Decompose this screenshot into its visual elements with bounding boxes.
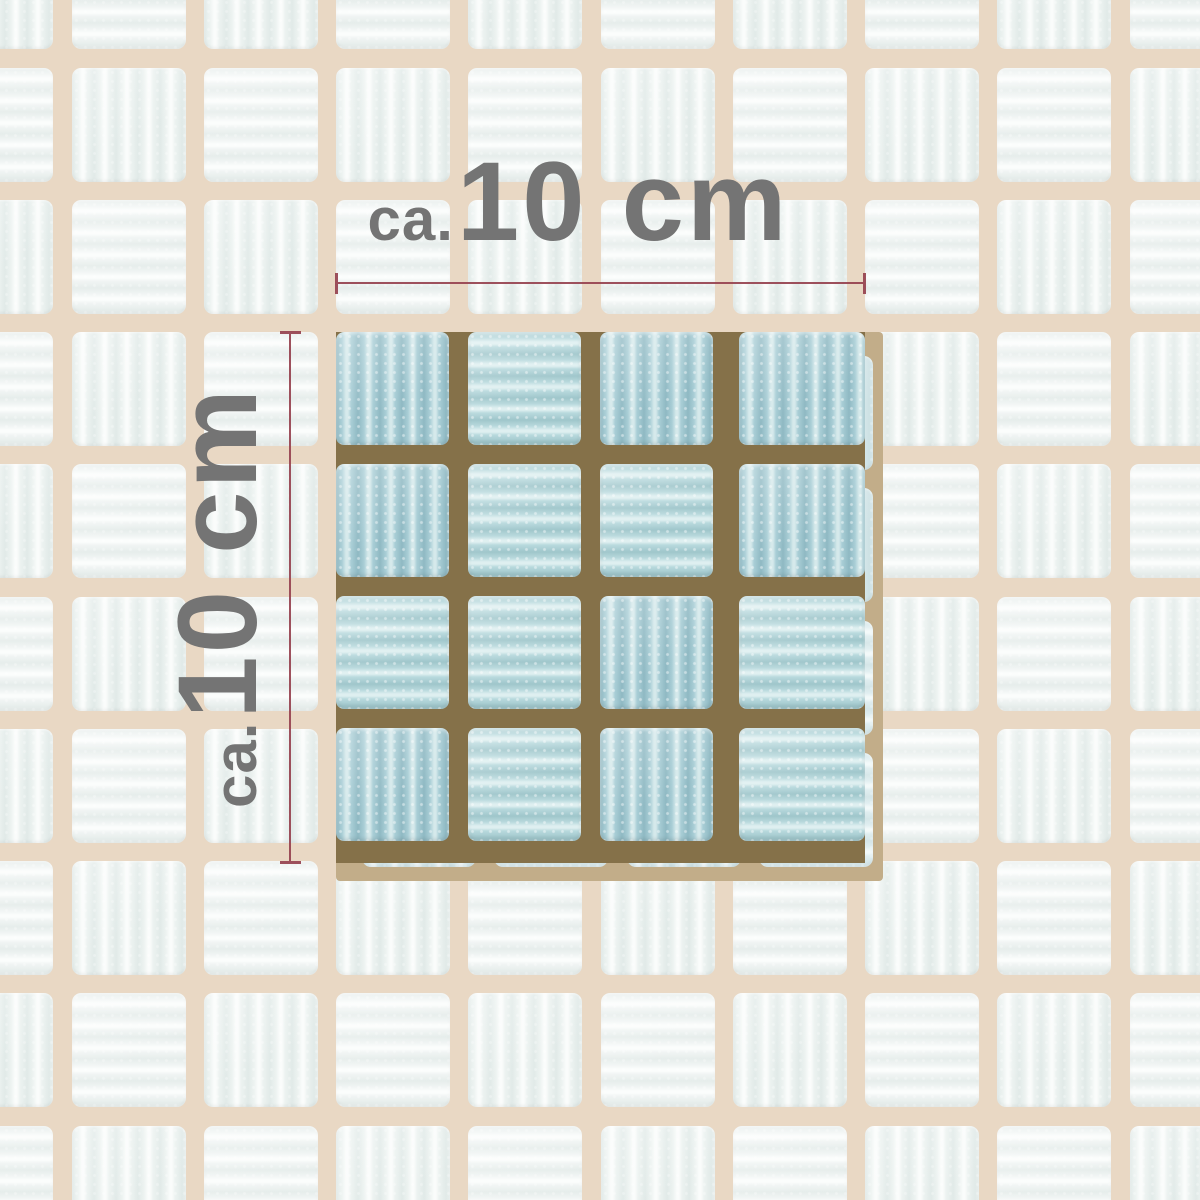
mosaic-tile [865, 0, 979, 49]
highlight-tile [468, 728, 581, 841]
height-label-value: 10 cm [162, 386, 274, 719]
mosaic-tile [0, 729, 53, 843]
measure-cap-right [863, 273, 866, 294]
mosaic-tile [997, 332, 1111, 446]
mosaic-tile [601, 0, 715, 49]
highlight-tile [739, 464, 865, 577]
mosaic-tile [336, 1126, 450, 1200]
highlight-tile [468, 464, 581, 577]
mosaic-tile [468, 993, 582, 1107]
mosaic-tile [0, 464, 53, 578]
measure-cap-left [335, 273, 338, 294]
highlight-tile [336, 596, 449, 709]
highlight-tile [739, 728, 865, 841]
height-label-prefix: ca. [206, 722, 266, 808]
highlight-tile [336, 332, 449, 445]
mosaic-tile [997, 0, 1111, 49]
mosaic-tile [0, 200, 53, 314]
mosaic-tile [0, 68, 53, 182]
mosaic-tile [733, 1126, 847, 1200]
measure-cap-top [280, 331, 301, 334]
mosaic-tile [72, 200, 186, 314]
mosaic-tile [1130, 0, 1200, 49]
mosaic-tile [0, 0, 53, 49]
mosaic-tile [72, 861, 186, 975]
mosaic-tile [733, 0, 847, 49]
mosaic-tile [1130, 729, 1200, 843]
mosaic-tile [1130, 68, 1200, 182]
mosaic-tile [468, 0, 582, 49]
highlight-tile [336, 728, 449, 841]
highlight-tile [468, 596, 581, 709]
mosaic-tile [997, 861, 1111, 975]
product-image: ca.10 cm ca.10 cm [0, 0, 1200, 1200]
mosaic-tile [601, 993, 715, 1107]
mosaic-tile [336, 993, 450, 1107]
height-measure-line [289, 332, 291, 863]
width-label-prefix: ca. [368, 190, 454, 250]
mosaic-tile [997, 200, 1111, 314]
mosaic-tile [204, 1126, 318, 1200]
mosaic-tile [1130, 332, 1200, 446]
mosaic-tile [601, 1126, 715, 1200]
mosaic-tile [997, 597, 1111, 711]
mosaic-tile [468, 1126, 582, 1200]
mosaic-tile [733, 993, 847, 1107]
mosaic-tile [0, 861, 53, 975]
mosaic-tile [1130, 993, 1200, 1107]
mosaic-tile [336, 0, 450, 49]
mosaic-tile [1130, 464, 1200, 578]
mosaic-tile [72, 993, 186, 1107]
mosaic-tile [72, 0, 186, 49]
highlight-tile [600, 728, 713, 841]
highlight-tile [468, 332, 581, 445]
width-measure-line [336, 282, 865, 284]
width-measure-label: ca.10 cm [314, 146, 843, 258]
mosaic-tile [204, 0, 318, 49]
mosaic-tile [997, 1126, 1111, 1200]
width-label-value: 10 cm [457, 146, 790, 258]
highlight-square [336, 332, 865, 863]
height-measure-label: ca.10 cm [162, 386, 274, 808]
mosaic-tile [865, 200, 979, 314]
mosaic-tile [0, 993, 53, 1107]
mosaic-tile [997, 68, 1111, 182]
mosaic-tile [997, 993, 1111, 1107]
mosaic-tile [865, 68, 979, 182]
mosaic-tile [204, 993, 318, 1107]
highlight-tile [739, 596, 865, 709]
mosaic-tile [865, 993, 979, 1107]
mosaic-tile [1130, 200, 1200, 314]
mosaic-tile [1130, 1126, 1200, 1200]
mosaic-tile [204, 861, 318, 975]
highlight-tile [600, 332, 713, 445]
highlight-tile [739, 332, 865, 445]
mosaic-tile [865, 1126, 979, 1200]
mosaic-tile [72, 1126, 186, 1200]
mosaic-tile [997, 729, 1111, 843]
mosaic-tile [204, 68, 318, 182]
mosaic-tile [997, 464, 1111, 578]
highlight-tile [600, 464, 713, 577]
mosaic-tile [1130, 861, 1200, 975]
measure-cap-bottom [280, 861, 301, 864]
mosaic-tile [0, 332, 53, 446]
highlight-tile [336, 464, 449, 577]
mosaic-tile [0, 597, 53, 711]
highlight-tile [600, 596, 713, 709]
mosaic-tile [0, 1126, 53, 1200]
mosaic-tile [72, 68, 186, 182]
mosaic-tile [1130, 597, 1200, 711]
mosaic-tile [204, 200, 318, 314]
